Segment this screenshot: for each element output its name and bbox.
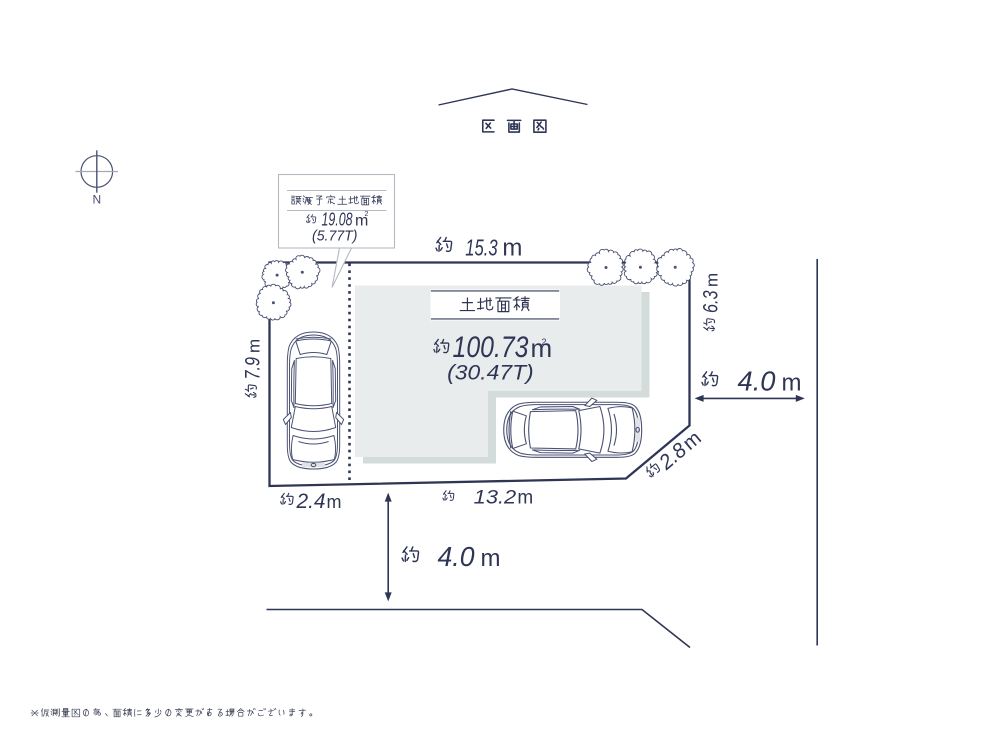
svg-text:13.2: 13.2 xyxy=(474,488,517,509)
svg-text:7.9: 7.9 xyxy=(241,357,264,380)
svg-text:2: 2 xyxy=(365,211,369,218)
svg-text:2: 2 xyxy=(542,337,547,347)
svg-text:4.0: 4.0 xyxy=(438,541,475,572)
svg-text:19.08: 19.08 xyxy=(322,210,353,230)
svg-text:m: m xyxy=(502,234,522,261)
svg-text:m: m xyxy=(782,370,802,397)
svg-text:N: N xyxy=(92,193,101,207)
svg-text:100.73: 100.73 xyxy=(453,331,529,364)
svg-text:4.0: 4.0 xyxy=(738,366,776,397)
svg-text:(30.47T): (30.47T) xyxy=(447,362,534,385)
svg-text:15.3: 15.3 xyxy=(465,234,498,260)
svg-text:m: m xyxy=(327,492,342,512)
svg-text:2.4: 2.4 xyxy=(296,490,326,513)
svg-text:m: m xyxy=(481,545,501,572)
svg-text:m: m xyxy=(244,339,263,353)
svg-text:m: m xyxy=(703,273,722,287)
svg-text:6.3: 6.3 xyxy=(700,290,723,313)
svg-text:m: m xyxy=(517,488,533,509)
svg-text:(5.77T): (5.77T) xyxy=(312,228,358,245)
